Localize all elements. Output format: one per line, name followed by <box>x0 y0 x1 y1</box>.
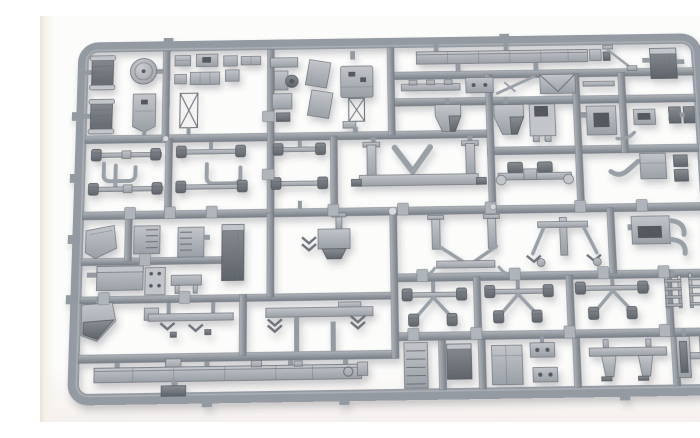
part-thin-rod <box>583 81 614 86</box>
runner-segment <box>607 208 617 274</box>
part-v-plate <box>540 74 576 94</box>
part-driveshafts-mid <box>176 141 248 193</box>
runner-segment <box>239 294 246 355</box>
part-fender-with-hooks <box>627 216 685 255</box>
part-pulley-disc <box>130 58 164 84</box>
part-arm-assembly <box>525 217 601 267</box>
part-tall-fuel-tank <box>222 224 245 280</box>
part-rivet-plate-1 <box>530 336 555 357</box>
runner-segment <box>572 338 581 388</box>
part-edge-boxes <box>668 107 695 124</box>
part-plain-box-1 <box>447 344 472 379</box>
runner-segment <box>438 340 446 390</box>
sprue-frame-group <box>62 30 700 410</box>
part-ribbed-engine-box-2 <box>178 227 210 257</box>
part-driveshafts-left <box>88 148 163 195</box>
part-x-driveshaft-cluster-2 <box>484 279 554 323</box>
part-small-fittings-row <box>175 53 261 85</box>
part-box-on-tower <box>340 51 373 133</box>
sprue-photo <box>40 16 700 422</box>
part-plain-box-2 <box>491 345 523 385</box>
part-exhaust-cylinder-2 <box>83 99 114 134</box>
part-chevron-hopper <box>302 213 350 259</box>
part-driveshafts-right <box>271 140 328 209</box>
part-ribbed-engine-box-1 <box>134 226 161 254</box>
runner-segment <box>566 275 576 334</box>
runner-segment <box>390 211 399 358</box>
part-seat-and-boot <box>610 153 689 182</box>
runner-segment <box>473 277 482 336</box>
runner-segment <box>487 144 698 155</box>
part-axle-with-drums <box>496 161 574 185</box>
part-dark-center-box <box>580 106 617 135</box>
runner-segment <box>478 340 487 390</box>
part-x-driveshaft-cluster-1 <box>402 281 468 327</box>
part-crossmember-with-posts <box>351 136 486 187</box>
part-tow-hitch-bar <box>144 302 234 338</box>
part-chevron-crossmember <box>266 302 374 353</box>
part-h-frame-crossmember <box>420 214 514 276</box>
runner-segment <box>81 257 222 266</box>
runner-segment <box>396 328 700 341</box>
part-cab-back-shield <box>132 94 156 136</box>
runner-segment <box>267 213 274 297</box>
part-exhaust-cylinder-1 <box>85 56 116 90</box>
part-diagonal-brace <box>497 77 535 94</box>
part-holes-plate <box>145 267 166 295</box>
part-x-driveshaft-cluster-3 <box>575 278 651 320</box>
runner-segment <box>330 136 337 212</box>
runner-segment <box>387 48 395 136</box>
part-ribbed-radiator <box>404 342 428 388</box>
runner-segment <box>395 269 700 282</box>
part-prong-bracket <box>171 275 202 294</box>
runner-segment <box>618 72 629 152</box>
part-white-face-box <box>529 104 556 142</box>
part-flat-plate <box>466 77 494 93</box>
runner-segment <box>124 215 132 261</box>
part-leaf-spring <box>401 80 460 91</box>
part-rivet-plate-2 <box>533 367 558 382</box>
part-mudguard-wedge <box>85 225 117 258</box>
part-bracket-assembly <box>270 58 298 122</box>
runner-segment <box>162 51 171 143</box>
part-crossmember-with-legs <box>589 339 668 381</box>
part-x-brace-frame <box>180 93 198 135</box>
runner-segment <box>164 139 172 215</box>
runner-segment <box>485 74 496 209</box>
part-storage-box <box>86 266 143 291</box>
part-slanted-panels <box>305 59 333 119</box>
runner-segment <box>78 350 396 363</box>
